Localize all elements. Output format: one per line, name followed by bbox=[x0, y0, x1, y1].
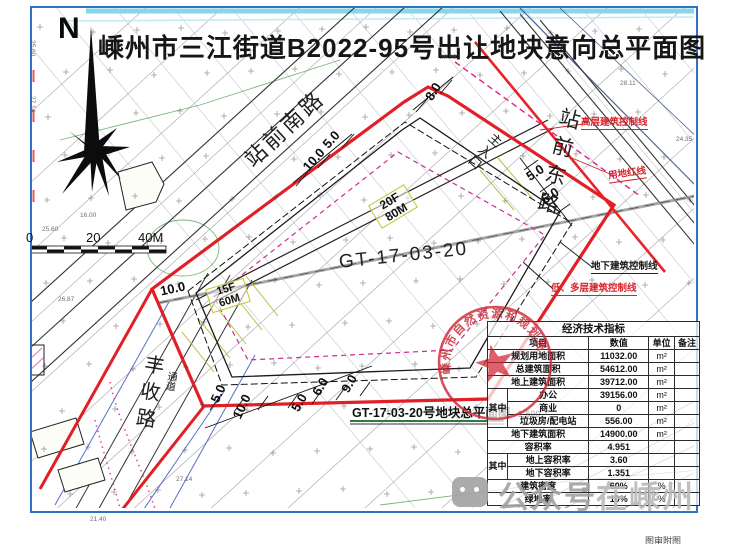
col-header-note: 备注 bbox=[675, 337, 700, 350]
scale-tick-0: 0 bbox=[26, 230, 33, 245]
cell-note bbox=[675, 441, 700, 454]
cell-value: 39712.00 bbox=[589, 376, 649, 389]
cell-note bbox=[675, 415, 700, 428]
elevation-mark: 28.11 bbox=[620, 80, 636, 87]
scale-tick-40: 40M bbox=[138, 230, 163, 245]
cell-item: 容积率 bbox=[488, 441, 589, 454]
cell-note bbox=[675, 376, 700, 389]
north-label: N bbox=[58, 12, 80, 46]
cell-note bbox=[675, 363, 700, 376]
cell-note bbox=[675, 428, 700, 441]
cell-unit: m² bbox=[649, 428, 675, 441]
elevation-mark: 25.60 bbox=[42, 226, 58, 233]
table-row: 地下建筑面积14900.00m² bbox=[488, 428, 700, 441]
site-plan-page: 嵊州市三江街道B2022-95号出让地块意向总平面图 N 0 20 40M 站前… bbox=[0, 0, 732, 544]
elevation-mark: 27.14 bbox=[176, 476, 192, 483]
col-header-unit: 单位 bbox=[649, 337, 675, 350]
cell-unit bbox=[649, 454, 675, 467]
cell-value: 11032.00 bbox=[589, 350, 649, 363]
table-row: 其中地上容积率3.60 bbox=[488, 454, 700, 467]
table-row: 容积率4.951 bbox=[488, 441, 700, 454]
elevation-mark: 29.35 bbox=[440, 54, 456, 61]
watermark-separator: · bbox=[580, 472, 592, 508]
cell-note bbox=[675, 454, 700, 467]
cell-value: 3.60 bbox=[589, 454, 649, 467]
cell-item: 地上容积率 bbox=[507, 454, 588, 467]
cell-note bbox=[675, 402, 700, 415]
cell-note bbox=[675, 350, 700, 363]
cell-item: 地下建筑面积 bbox=[488, 428, 589, 441]
stamp-star-icon bbox=[472, 340, 518, 384]
elevation-mark: 25.60 bbox=[29, 40, 36, 56]
cell-value: 556.00 bbox=[589, 415, 649, 428]
scale-tick-20: 20 bbox=[86, 230, 100, 245]
cell-value: 4.951 bbox=[589, 441, 649, 454]
label-underground-control: 地下建筑控制线 bbox=[591, 258, 658, 274]
elevation-mark: 16.00 bbox=[80, 212, 96, 219]
cell-value: 39156.00 bbox=[589, 389, 649, 402]
watermark-name: 在嵊州 bbox=[596, 472, 695, 517]
road-label-west-note: 通道 bbox=[161, 370, 179, 392]
cell-unit: m² bbox=[649, 376, 675, 389]
cell-value: 0 bbox=[589, 402, 649, 415]
elevation-mark: 21.40 bbox=[90, 516, 106, 523]
footer-note: 图审附图 bbox=[645, 534, 681, 544]
elevation-mark: 26.87 bbox=[58, 296, 74, 303]
cell-unit bbox=[649, 441, 675, 454]
label-high-rise-control: 高层建筑控制线 bbox=[581, 114, 648, 130]
cell-note bbox=[675, 389, 700, 402]
cell-unit: m² bbox=[649, 402, 675, 415]
watermark-logo-icon bbox=[452, 477, 488, 507]
cell-unit: m² bbox=[649, 350, 675, 363]
elevation-mark: 24.35 bbox=[676, 136, 692, 143]
cell-unit: m² bbox=[649, 363, 675, 376]
cell-unit: m² bbox=[649, 415, 675, 428]
page-title: 嵊州市三江街道B2022-95号出让地块意向总平面图 bbox=[98, 28, 706, 65]
elevation-mark: 27.14 bbox=[29, 96, 36, 112]
cell-value: 54612.00 bbox=[589, 363, 649, 376]
cell-value: 14900.00 bbox=[589, 428, 649, 441]
label-low-multi-control: 低、多层建筑控制线 bbox=[551, 280, 637, 296]
cell-unit: m² bbox=[649, 389, 675, 402]
col-header-value: 数值 bbox=[589, 337, 649, 350]
